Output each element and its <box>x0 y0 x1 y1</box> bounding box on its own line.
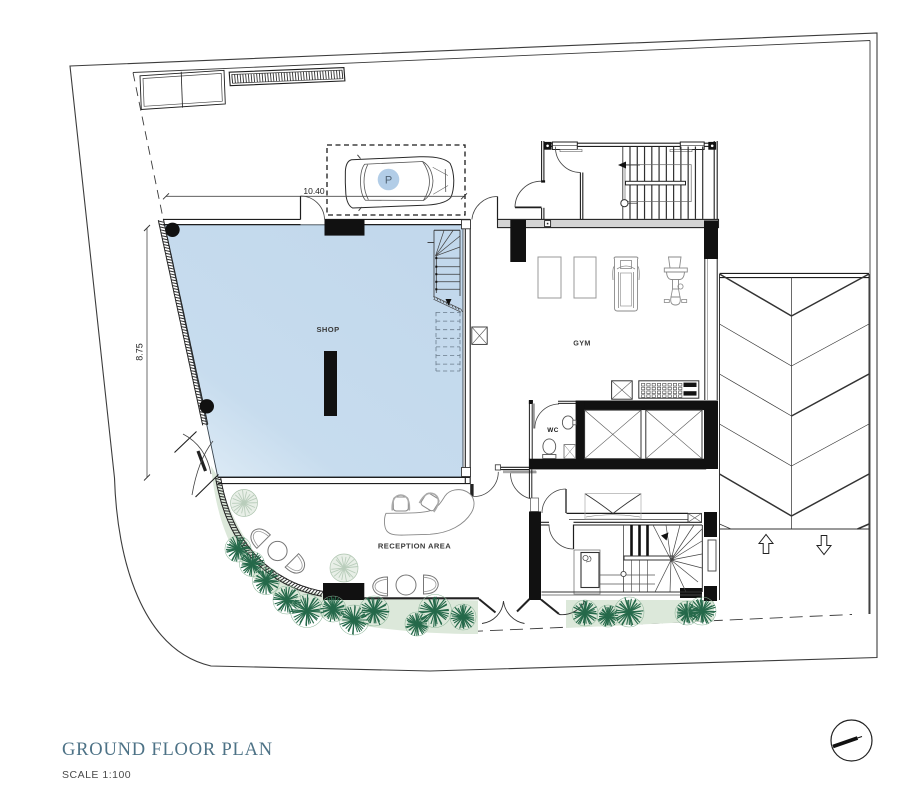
svg-text:GROUND FLOOR PLAN: GROUND FLOOR PLAN <box>62 740 273 760</box>
svg-text:GYM: GYM <box>573 339 591 348</box>
svg-text:SCALE 1:100: SCALE 1:100 <box>62 769 131 781</box>
svg-text:RECEPTION AREA: RECEPTION AREA <box>378 542 451 551</box>
svg-text:10.40: 10.40 <box>303 186 325 196</box>
svg-text:8.75: 8.75 <box>135 343 145 361</box>
svg-text:SHOP: SHOP <box>316 325 339 334</box>
svg-text:WC: WC <box>547 427 558 434</box>
svg-text:P: P <box>385 175 392 187</box>
